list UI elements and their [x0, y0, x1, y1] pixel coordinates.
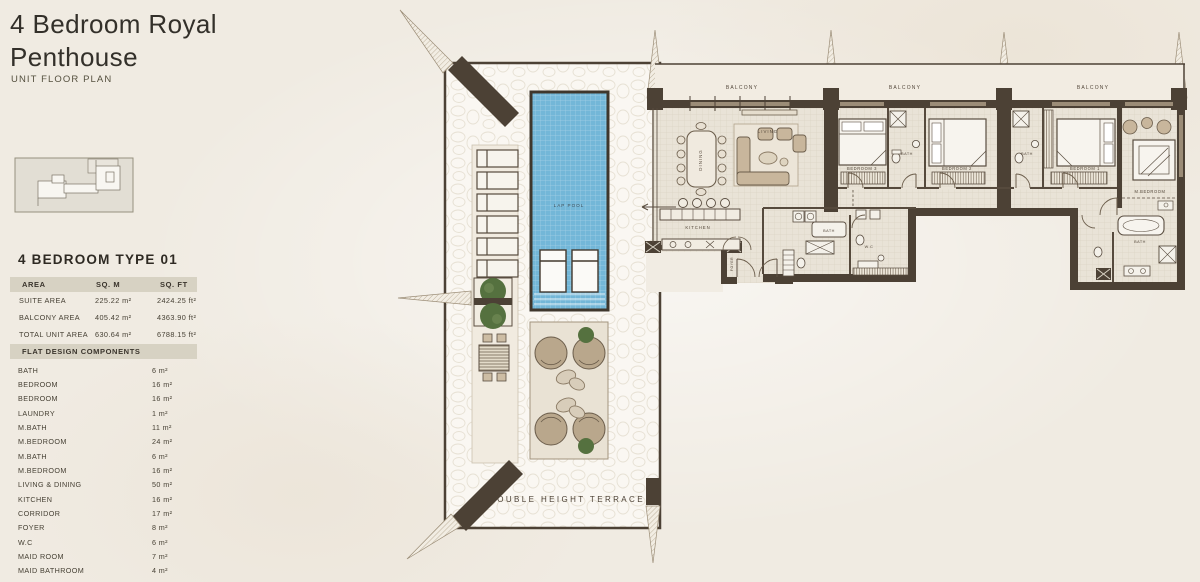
bedroom2: BEDROOM 2 [929, 119, 986, 184]
list-item: W.C6 m² [10, 535, 197, 549]
lap-pool: LAP POOL [531, 92, 608, 310]
list-item: BATH6 m² [10, 363, 197, 377]
component-area: 1 m² [152, 409, 168, 418]
balcony-strip: BALCONY BALCONY BALCONY [655, 64, 1185, 102]
bath3-label: BATH [901, 152, 913, 156]
kitchen-label: KITCHEN [685, 225, 710, 230]
info-panel: 4 Bedroom Royal Penthouse UNIT FLOOR PLA… [0, 0, 230, 582]
page-title: 4 Bedroom Royal Penthouse [10, 8, 217, 74]
bath2-label: BATH [1021, 152, 1033, 156]
pier [646, 478, 660, 505]
row-sqm: 630.64 m² [95, 330, 157, 339]
component-label: BATH [10, 366, 152, 375]
list-item: M.BEDROOM16 m² [10, 463, 197, 477]
area-table-header: AREA SQ. M SQ. FT [10, 277, 197, 292]
row-sqft: 2424.25 ft² [157, 296, 197, 305]
balcony-label-2: BALCONY [889, 85, 921, 91]
component-area: 24 m² [152, 437, 172, 446]
wc-label: W.C [865, 245, 874, 249]
unit-type-title: 4 BEDROOM TYPE 01 [18, 252, 178, 267]
row-sqft: 6788.15 ft² [157, 330, 197, 339]
table-row: BALCONY AREA 405.42 m² 4363.90 ft² [10, 309, 197, 326]
component-label: M.BEDROOM [10, 466, 152, 475]
living-label: LIVING [758, 129, 778, 134]
components-header: FLAT DESIGN COMPONENTS [10, 344, 197, 359]
balcony-label-3: BALCONY [1077, 85, 1109, 91]
list-item: FOYER8 m² [10, 521, 197, 535]
row-label: SUITE AREA [19, 296, 95, 305]
components-list: BATH6 m² BEDROOM16 m² BEDROOM16 m² LAUND… [10, 363, 197, 578]
table-row: TOTAL UNIT AREA 630.64 m² 6788.15 ft² [10, 326, 197, 343]
component-label: BEDROOM [10, 394, 152, 403]
component-area: 17 m² [152, 509, 172, 518]
list-item: MAID ROOM7 m² [10, 549, 197, 563]
component-area: 16 m² [152, 495, 172, 504]
row-label: TOTAL UNIT AREA [19, 330, 95, 339]
mbedroom-label: M.BEDROOM [1134, 189, 1165, 194]
component-area: 7 m² [152, 552, 168, 561]
lap-pool-label: LAP POOL [554, 203, 585, 208]
balcony-label-1: BALCONY [726, 85, 758, 91]
component-label: MAID BATHROOM [10, 566, 152, 575]
component-area: 4 m² [152, 566, 168, 575]
bedroom1-label: BEDROOM 1 [1070, 166, 1100, 171]
component-label: CORRIDOR [10, 509, 152, 518]
list-item: LIVING & DINING50 m² [10, 478, 197, 492]
component-label: W.C [10, 538, 152, 547]
area-table: AREA SQ. M SQ. FT SUITE AREA 225.22 m² 2… [10, 277, 197, 343]
bedroom1: BEDROOM 1 [1051, 119, 1115, 184]
component-label: M.BATH [10, 452, 152, 461]
list-item: M.BATH6 m² [10, 449, 197, 463]
planter [474, 278, 512, 329]
bedroom3-label: BEDROOM 3 [847, 166, 877, 171]
component-label: LIVING & DINING [10, 480, 152, 489]
page-subtitle: UNIT FLOOR PLAN [11, 74, 112, 85]
list-item: LAUNDRY1 m² [10, 406, 197, 420]
list-item: KITCHEN16 m² [10, 492, 197, 506]
table-row: SUITE AREA 225.22 m² 2424.25 ft² [10, 292, 197, 309]
component-label: LAUNDRY [10, 409, 152, 418]
row-label: BALCONY AREA [19, 313, 95, 322]
bedroom2-label: BEDROOM 2 [942, 166, 972, 171]
terrace-lounge [530, 322, 608, 459]
row-sqm: 405.42 m² [95, 313, 157, 322]
component-area: 16 m² [152, 394, 172, 403]
spire-left [398, 291, 471, 305]
plant [578, 327, 594, 343]
component-label: M.BEDROOM [10, 437, 152, 446]
area-header-col3: SQ. FT [160, 280, 197, 289]
page-title-line2: Penthouse [10, 41, 217, 74]
list-item: BEDROOM16 m² [10, 392, 197, 406]
dining-label: DINING [698, 149, 703, 170]
component-area: 50 m² [152, 480, 172, 489]
component-label: BEDROOM [10, 380, 152, 389]
spire-bottom [646, 506, 660, 563]
plant [578, 438, 594, 454]
component-label: FOYER [10, 523, 152, 532]
component-label: M.BATH [10, 423, 152, 432]
row-sqft: 4363.90 ft² [157, 313, 197, 322]
closet [1044, 110, 1053, 168]
components-header-label: FLAT DESIGN COMPONENTS [22, 347, 197, 356]
bedroom3: BEDROOM 3 [839, 119, 886, 184]
spire-bottom-left [407, 514, 461, 559]
foyer-label: FOYER [730, 257, 734, 271]
list-item: CORRIDOR17 m² [10, 506, 197, 520]
component-area: 16 m² [152, 466, 172, 475]
area-header-col1: AREA [22, 280, 96, 289]
component-label: KITCHEN [10, 495, 152, 504]
list-item: M.BEDROOM24 m² [10, 435, 197, 449]
terrace: LAP POOL [445, 63, 660, 528]
list-item: MAID BATHROOM4 m² [10, 564, 197, 578]
list-item: BEDROOM16 m² [10, 377, 197, 391]
component-area: 11 m² [152, 423, 172, 432]
spire-top-left [400, 10, 453, 73]
area-header-col2: SQ. M [96, 280, 160, 289]
component-area: 16 m² [152, 380, 172, 389]
bath-mid-label: BATH [823, 229, 835, 233]
mbath-label: BATH [1134, 240, 1146, 244]
component-area: 6 m² [152, 538, 168, 547]
page-title-line1: 4 Bedroom Royal [10, 8, 217, 41]
row-sqm: 225.22 m² [95, 296, 157, 305]
component-area: 6 m² [152, 452, 168, 461]
list-item: M.BATH11 m² [10, 420, 197, 434]
component-area: 6 m² [152, 366, 168, 375]
component-area: 8 m² [152, 523, 168, 532]
component-label: MAID ROOM [10, 552, 152, 561]
terrace-label: DOUBLE HEIGHT TERRACE [489, 495, 645, 504]
